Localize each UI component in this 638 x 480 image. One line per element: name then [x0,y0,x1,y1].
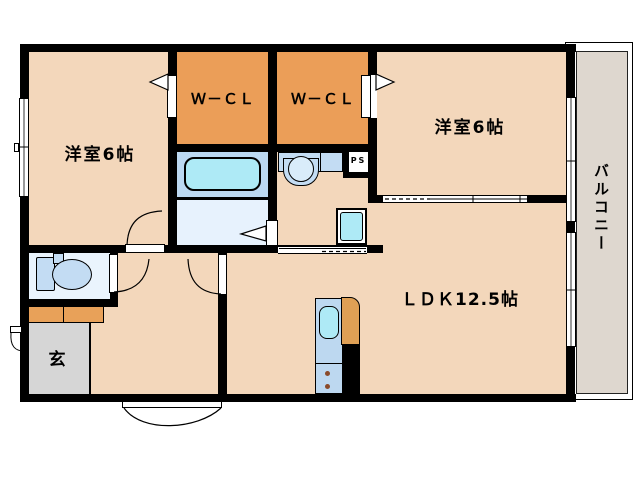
wall-right-lower [566,347,575,401]
kitchen-side-wall [343,345,360,394]
wall-closetR-right [368,44,377,203]
washbasin-bowl [288,156,314,182]
refrigerator-space [341,297,360,345]
washing-machine [340,212,363,241]
sliding-door-bedroomR-ldk [382,195,528,203]
room-label-balcony: バルコニー [592,163,612,253]
toilet-bowl [52,259,92,290]
room-label-closet-right: Ｗ－ＣＬ [279,88,367,109]
wall-toilet-bottom [20,299,118,307]
ldk-door-leaf [218,254,227,295]
entrance-door-arc [124,408,221,426]
sliding-door-washroom-ldk [278,246,367,254]
stove-burner [325,371,330,376]
wall-top [20,44,576,52]
bathtub [184,157,261,191]
washbasin-counter-divider [320,152,321,172]
wall-right-upper [566,44,575,97]
meter-box-door-leaf [10,326,22,333]
bedroomL-door-leaf [125,244,165,253]
kitchen-sink [319,306,339,339]
wall-between-closets [268,44,277,152]
window-left [19,98,29,197]
wall-right-mid [566,222,575,232]
washroom-floor [177,200,268,245]
bath-washroom-divider [177,197,268,200]
room-label-bedroom-right: 洋室6帖 [400,113,540,138]
wall-bottom [20,394,576,402]
closetL-door-leaf [167,75,177,118]
room-label-ldk: ＬＤＫ12.5帖 [385,285,535,310]
entrance-step-line [89,322,91,394]
kitchen-counter-divider [315,363,343,364]
room-label-closet-left: Ｗ－ＣＬ [179,88,267,109]
shoe-cabinet [28,305,104,323]
window-left-knob [14,143,19,152]
room-label-bedroom-left: 洋室6帖 [40,140,160,165]
floorplan: 洋室6帖 洋室6帖 Ｗ－ＣＬ Ｗ－ＣＬ ＬＤＫ12.5帖 玄 PS バルコニー [0,0,638,480]
room-label-pipe-space: PS [349,156,368,165]
window-balcony-ldk [566,232,576,347]
entrance-door-leaf [122,401,222,408]
washroom-door-leaf [266,220,278,246]
room-label-entrance: 玄 [45,345,69,370]
shoe-cabinet-divider [63,305,64,323]
window-balcony-bedroom [566,97,576,222]
toilet-door-leaf [109,254,118,293]
stove-burner [325,384,330,389]
